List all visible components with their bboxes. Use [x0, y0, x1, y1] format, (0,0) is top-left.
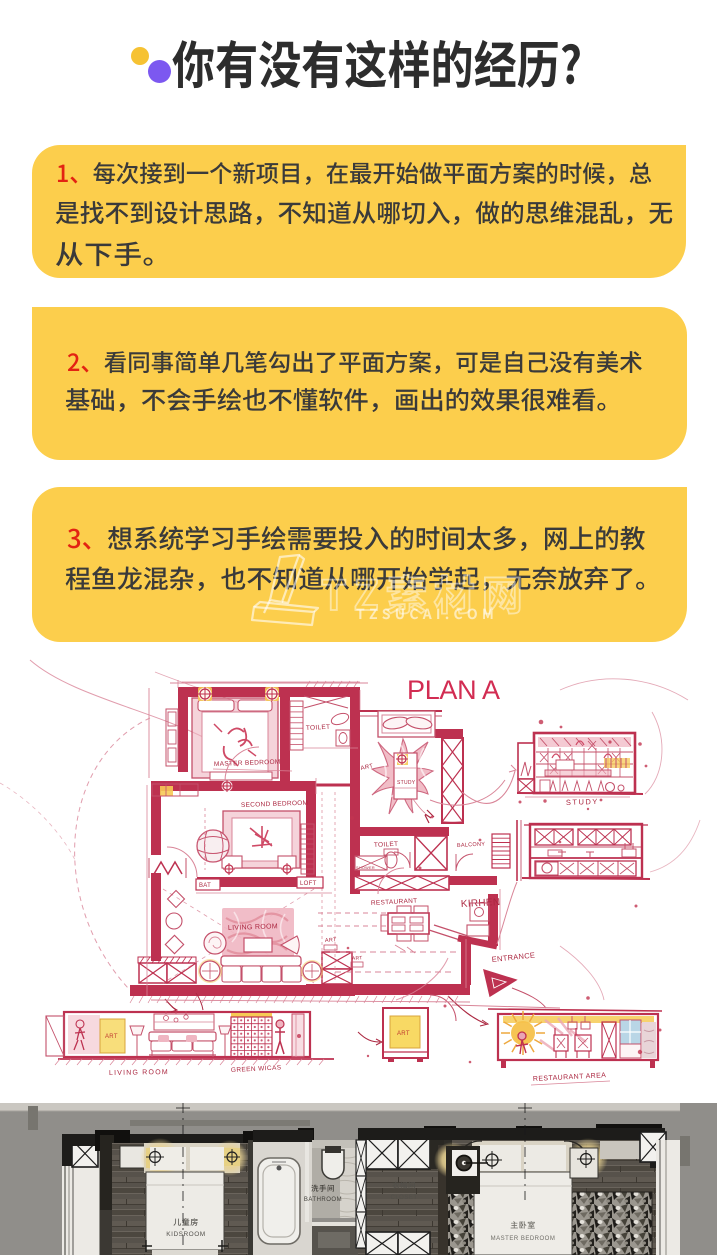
svg-text:STUDY: STUDY [566, 797, 599, 807]
svg-text:洗手间: 洗手间 [311, 1184, 335, 1193]
svg-text:ART: ART [360, 763, 374, 772]
svg-text:SHOWER: SHOWER [356, 866, 375, 870]
svg-text:RESTAURANT AREA: RESTAURANT AREA [533, 1072, 607, 1083]
svg-text:儿童房: 儿童房 [173, 1218, 199, 1227]
svg-text:ART: ART [325, 937, 338, 944]
svg-text:GREEN WICAS: GREEN WICAS [231, 1064, 282, 1074]
svg-text:ART: ART [105, 1034, 118, 1040]
svg-text:PLAN A: PLAN A [407, 675, 500, 705]
svg-text:MASTER BEDROOM: MASTER BEDROOM [491, 1236, 556, 1242]
svg-text:ART: ART [397, 1031, 410, 1037]
svg-text:主卧室: 主卧室 [510, 1221, 536, 1230]
svg-text:ENTRANCE: ENTRANCE [491, 950, 535, 964]
svg-text:衣帽间: 衣帽间 [392, 1181, 416, 1190]
svg-text:BAT: BAT [199, 883, 211, 889]
svg-text:ART: ART [352, 955, 363, 962]
svg-text:TOILET: TOILET [374, 841, 399, 849]
svg-text:KIDSROOM: KIDSROOM [166, 1231, 205, 1238]
svg-text:TOILET: TOILET [306, 724, 331, 732]
svg-text:STUDY: STUDY [397, 780, 416, 786]
svg-text:BALCONY: BALCONY [457, 842, 486, 849]
svg-text:SECOND BEDROOM: SECOND BEDROOM [241, 800, 309, 809]
svg-text:LOFT: LOFT [300, 881, 317, 887]
svg-text:BATHROOM: BATHROOM [304, 1197, 342, 1203]
svg-text:CLOSET: CLOSET [390, 1195, 417, 1201]
svg-text:LIVING ROOM: LIVING ROOM [109, 1069, 169, 1077]
